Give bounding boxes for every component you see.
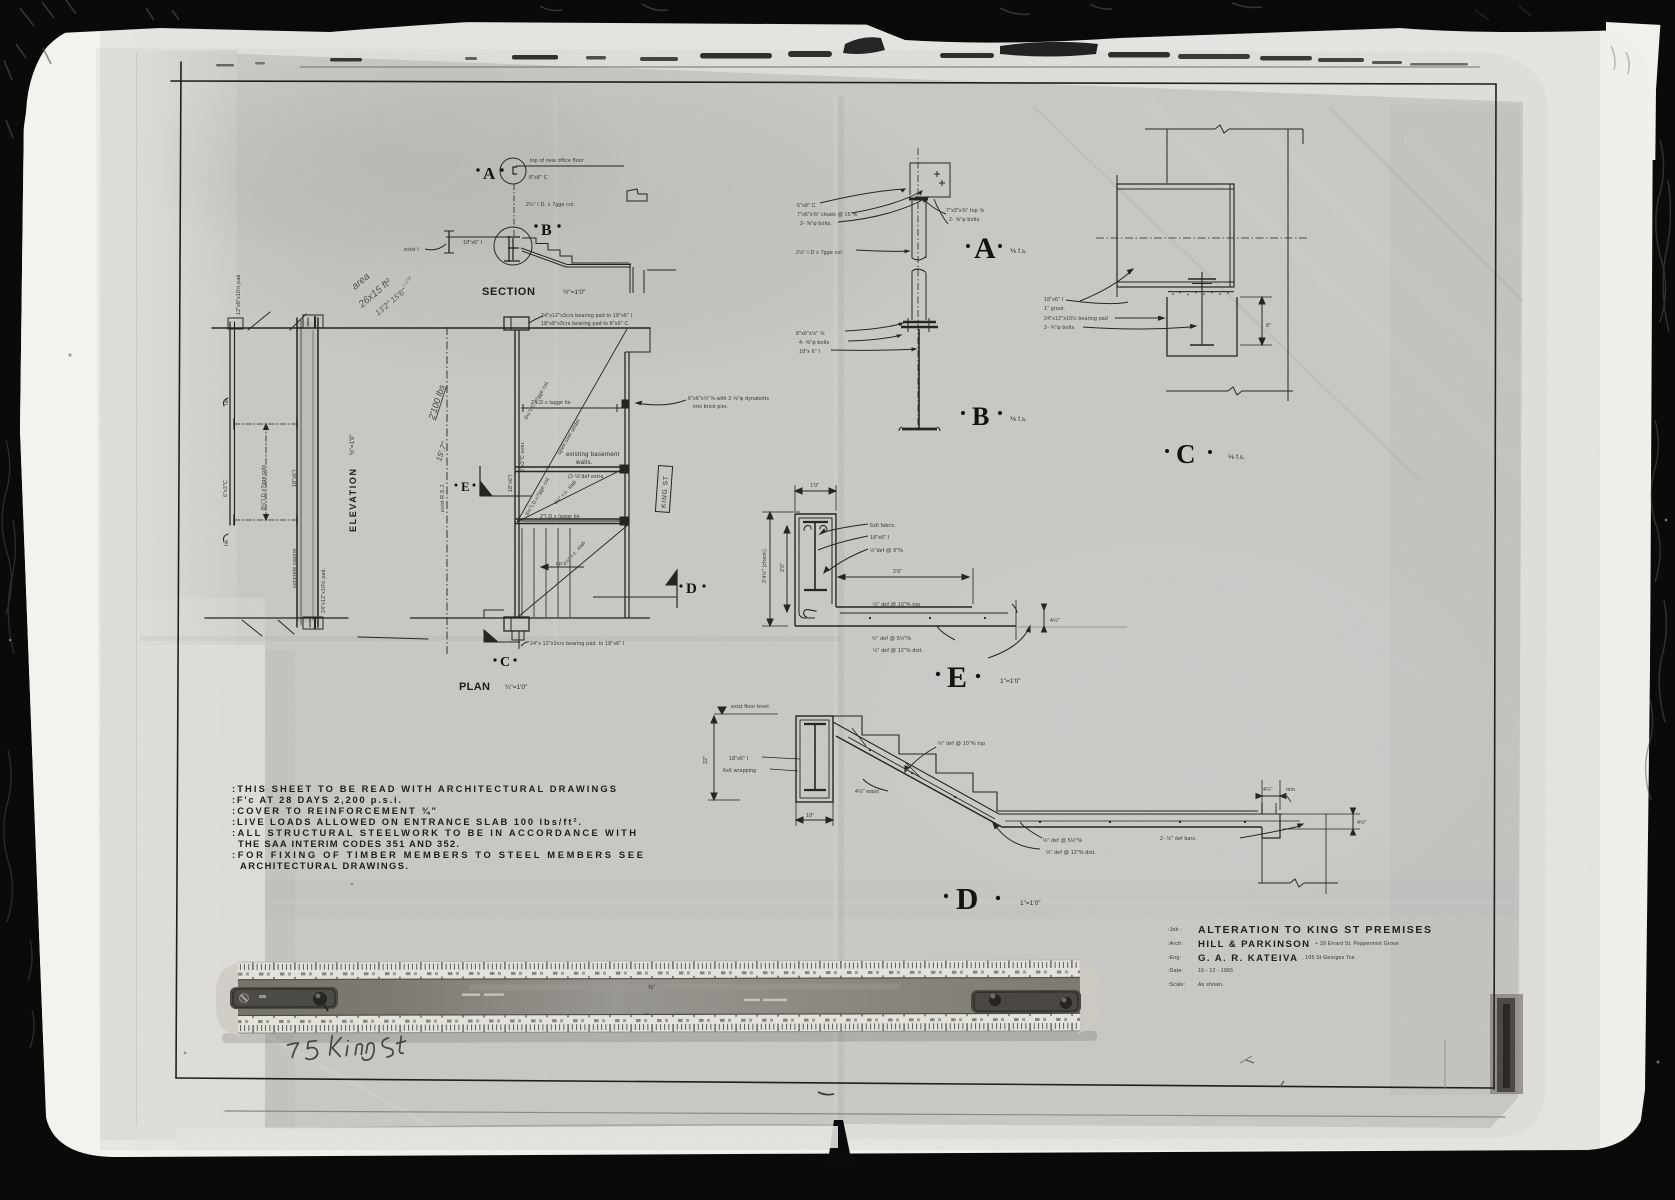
svg-text:22": 22" — [703, 756, 709, 764]
svg-text:4½": 4½" — [1050, 617, 1060, 624]
svg-text:SECTION: SECTION — [482, 286, 536, 298]
svg-text:2- ½" def bars.: 2- ½" def bars. — [1160, 835, 1197, 842]
svg-text:2'4½" (check).: 2'4½" (check). — [761, 547, 768, 583]
svg-text:HILL & PARKINSON: HILL & PARKINSON — [1198, 939, 1310, 950]
svg-text:ELEVATION: ELEVATION — [348, 468, 358, 532]
svg-text:2½" I.D. x 7gge col.: 2½" I.D. x 7gge col. — [526, 201, 575, 208]
svg-text:, 105 St Georges Tce.: , 105 St Georges Tce. — [1302, 955, 1356, 961]
svg-text:min.: min. — [1286, 787, 1297, 793]
svg-text:18"x6"I: 18"x6"I — [292, 469, 298, 487]
svg-text:7"x6"x⅜" cleats @ 15"%: 7"x6"x⅜" cleats @ 15"% — [797, 212, 858, 218]
svg-text:½" def @ 10"% top: ½" def @ 10"% top — [938, 740, 985, 747]
svg-text:THE SAA INTERIM CODES 351 AND: THE SAA INTERIM CODES 351 AND 352. — [238, 838, 460, 849]
svg-text:7"x3"x⅜" top ⅝: 7"x3"x⅜" top ⅝ — [946, 208, 985, 214]
svg-text:G. A. R. KATEIVA: G. A. R. KATEIVA — [1198, 953, 1298, 964]
svg-text::Scale:: :Scale: — [1168, 982, 1185, 988]
svg-text:up: up — [556, 561, 562, 567]
svg-text::Date:: :Date: — [1168, 968, 1183, 974]
svg-text::LIVE LOADS ALLOWED ON ENT: :LIVE LOADS ALLOWED ON ENTRANCE SLAB 100… — [232, 816, 582, 827]
svg-text:2'0": 2'0" — [780, 563, 786, 572]
svg-text:16 - 12 - 1965: 16 - 12 - 1965 — [1198, 968, 1233, 974]
svg-text:E: E — [947, 661, 967, 694]
svg-text:4½" waist: 4½" waist — [855, 788, 879, 795]
svg-text:18"x6" I: 18"x6" I — [1044, 297, 1063, 303]
svg-text:18"x6"I: 18"x6"I — [508, 474, 514, 492]
svg-text:¼"=1'0": ¼"=1'0" — [505, 684, 528, 691]
svg-text:tie: tie — [224, 540, 230, 546]
svg-text:18"x8"x3crs bearing pad to: 18"x8"x3crs bearing pad to 8"x6" C — [541, 321, 628, 327]
svg-text:18"x 6" I: 18"x 6" I — [799, 349, 820, 355]
svg-text:2'6": 2'6" — [893, 569, 902, 575]
svg-text:2- ⅝"φ bolts.: 2- ⅝"φ bolts. — [949, 217, 981, 223]
svg-text:12"x8"x10½ pad: 12"x8"x10½ pad — [235, 274, 242, 315]
svg-text:4¼": 4¼" — [1263, 787, 1273, 793]
svg-text:6"x6"x½"⅝ with 2-⅝"φ dynabolts: 6"x6"x½"⅝ with 2-⅝"φ dynabolts — [688, 395, 769, 402]
svg-text:2- ⅝"φ bolts.: 2- ⅝"φ bolts. — [800, 221, 832, 227]
svg-text:2- ¾"φ bolts: 2- ¾"φ bolts — [1044, 325, 1075, 331]
svg-text:6x6 fabric.: 6x6 fabric. — [870, 523, 896, 529]
svg-text::F'c AT 28 DAYS 2,200 p.s.i.: :F'c AT 28 DAYS 2,200 p.s.i. — [232, 794, 402, 805]
svg-text::COVER TO REINFORCEMENT ¾": :COVER TO REINFORCEMENT ¾" — [232, 805, 437, 816]
svg-text:8½"I.D.x7gge cols: 8½"I.D.x7gge cols — [260, 464, 267, 510]
svg-text:4- ⅝"φ bolts: 4- ⅝"φ bolts — [799, 340, 830, 346]
svg-text:2"I.D.x lagge tie: 2"I.D.x lagge tie — [540, 514, 580, 520]
svg-text:½"def @ 9"%: ½"def @ 9"% — [870, 547, 903, 554]
svg-text:½" def @ 5½"%: ½" def @ 5½"% — [1043, 837, 1082, 844]
svg-text::THIS SHEET TO BE READ WI: :THIS SHEET TO BE READ WITH ARCHITECTURA… — [232, 783, 617, 794]
svg-text:B: B — [541, 222, 552, 239]
svg-text:As shown.: As shown. — [1198, 982, 1224, 988]
svg-text:ARCHITECTURAL DRAWINGS.: ARCHITECTURAL DRAWINGS. — [240, 860, 409, 871]
svg-text:top of new office floor: top of new office floor — [530, 158, 584, 164]
svg-text:into brick pier.: into brick pier. — [693, 404, 728, 410]
svg-text:½" def @ 12"% dist.: ½" def @ 12"% dist. — [873, 647, 923, 654]
svg-text:18"x6" I: 18"x6" I — [463, 240, 482, 246]
svg-text:PLAN: PLAN — [459, 681, 491, 693]
svg-text:exist floor level.: exist floor level. — [731, 704, 770, 710]
svg-text:24"x 12"x3crs bearing pad.: 24"x 12"x3crs bearing pad. to 18"x6" I — [530, 641, 625, 647]
svg-text:C: C — [1176, 439, 1196, 469]
svg-text:6x6 wrapping: 6x6 wrapping — [723, 768, 756, 774]
svg-text:24"x12"x3crs bearing pad to: 24"x12"x3crs bearing pad to 18"x6" I — [541, 313, 632, 319]
svg-text:24"x12"x10½ bearing pad: 24"x12"x10½ bearing pad — [1044, 315, 1108, 322]
svg-text::Job :: :Job : — [1168, 927, 1182, 933]
svg-text:2½" I.D x 7gge col.: 2½" I.D x 7gge col. — [796, 249, 843, 256]
svg-text:½" def @ 5½"%: ½" def @ 5½"% — [872, 635, 911, 642]
svg-text::Arch:: :Arch: — [1168, 941, 1183, 947]
svg-text:1"=1'0": 1"=1'0" — [1020, 900, 1041, 907]
svg-text:D: D — [686, 581, 697, 597]
svg-text:E: E — [461, 479, 470, 494]
svg-text:½" def @ 10"% top: ½" def @ 10"% top — [873, 601, 920, 608]
svg-text:2"I.D.x lagge tie: 2"I.D.x lagge tie — [531, 400, 571, 406]
svg-text::ALL STRUCTURAL STEELWORK T: :ALL STRUCTURAL STEELWORK TO BE IN ACCOR… — [232, 827, 637, 838]
svg-text:D: D — [956, 881, 978, 916]
svg-text:⅙ f.s.: ⅙ f.s. — [1010, 248, 1027, 255]
svg-text:tie: tie — [224, 399, 230, 405]
svg-text:½"=1'0": ½"=1'0" — [349, 434, 356, 455]
svg-text::FOR FIXING OF TIMBER MEMB: :FOR FIXING OF TIMBER MEMBERS TO STEEL M… — [232, 849, 644, 860]
svg-text:A: A — [974, 232, 996, 265]
svg-text:½" def @ 12"% dist.: ½" def @ 12"% dist. — [1046, 849, 1096, 856]
svg-text:existing basement: existing basement — [566, 452, 619, 458]
svg-text:ALTERATION TO KING ST: ALTERATION TO KING ST PREMISES — [1198, 924, 1432, 936]
svg-text:10": 10" — [806, 813, 814, 819]
svg-text:6"x3"C: 6"x3"C — [223, 480, 229, 497]
svg-text:⅙ f.s.: ⅙ f.s. — [1228, 454, 1245, 461]
svg-text:24"x12"x10½ pad.: 24"x12"x10½ pad. — [320, 568, 327, 613]
svg-text:1" grout.: 1" grout. — [1044, 306, 1065, 312]
svg-text:exist I: exist I — [404, 247, 419, 253]
svg-text:1'0": 1'0" — [810, 483, 819, 489]
svg-text:6"x8" C: 6"x8" C — [797, 203, 816, 209]
svg-text:4½": 4½" — [1357, 819, 1367, 826]
svg-text:8": 8" — [1266, 323, 1271, 329]
svg-text:C: C — [500, 655, 510, 670]
svg-text:6"x3"C over.: 6"x3"C over. — [520, 441, 526, 472]
svg-text::Eng:: :Eng: — [1168, 955, 1181, 961]
svg-text:18"x6" I: 18"x6" I — [729, 756, 748, 762]
svg-text:8"x6"x½" ⅝: 8"x6"x½" ⅝ — [796, 330, 825, 337]
svg-text:B: B — [972, 402, 989, 431]
svg-text:1"=1'0": 1"=1'0" — [1000, 678, 1021, 685]
svg-text:concrete casing: concrete casing — [292, 549, 298, 588]
svg-text:18"x6" I: 18"x6" I — [870, 535, 889, 541]
svg-text:exist R.S.J.: exist R.S.J. — [440, 483, 446, 512]
svg-text:⅜": ⅜" — [648, 985, 655, 991]
svg-text:A: A — [483, 164, 496, 183]
svg-text:8"x8" C: 8"x8" C — [529, 175, 548, 181]
svg-text:½"=1'0": ½"=1'0" — [563, 288, 586, 296]
svg-text:walls.: walls. — [575, 460, 593, 466]
svg-text:⅙ f.s.: ⅙ f.s. — [1010, 416, 1027, 423]
svg-text:+ 39 Errard St. Peppermint Gro: + 39 Errard St. Peppermint Grove — [1315, 941, 1399, 947]
